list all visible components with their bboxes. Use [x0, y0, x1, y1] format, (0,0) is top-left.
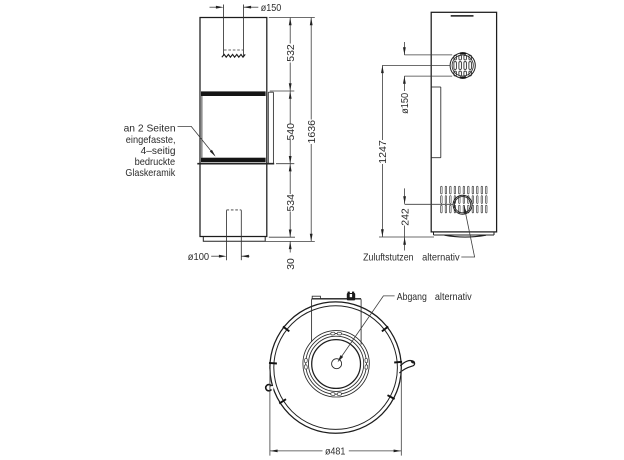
- svg-text:Glaskeramik: Glaskeramik: [125, 168, 175, 179]
- svg-text:ø150: ø150: [261, 3, 282, 14]
- svg-text:bedruckte: bedruckte: [135, 157, 176, 168]
- svg-text:ø481: ø481: [325, 447, 346, 458]
- svg-text:Zuluftstutzen: Zuluftstutzen: [363, 252, 414, 263]
- svg-text:ø100: ø100: [188, 252, 209, 263]
- svg-text:alternativ: alternativ: [422, 252, 460, 263]
- svg-text:Abgang: Abgang: [397, 292, 427, 303]
- svg-text:242: 242: [400, 208, 411, 226]
- svg-text:4–seitig: 4–seitig: [141, 146, 176, 157]
- svg-text:532: 532: [286, 44, 297, 62]
- svg-text:eingefasste,: eingefasste,: [126, 135, 176, 146]
- svg-text:534: 534: [286, 194, 297, 212]
- svg-text:1247: 1247: [378, 140, 389, 164]
- svg-text:30: 30: [286, 258, 297, 270]
- svg-text:an 2 Seiten: an 2 Seiten: [124, 124, 176, 135]
- svg-text:540: 540: [286, 123, 297, 141]
- svg-text:alternativ: alternativ: [435, 292, 472, 303]
- svg-text:1636: 1636: [307, 120, 318, 144]
- svg-text:ø150: ø150: [400, 93, 411, 114]
